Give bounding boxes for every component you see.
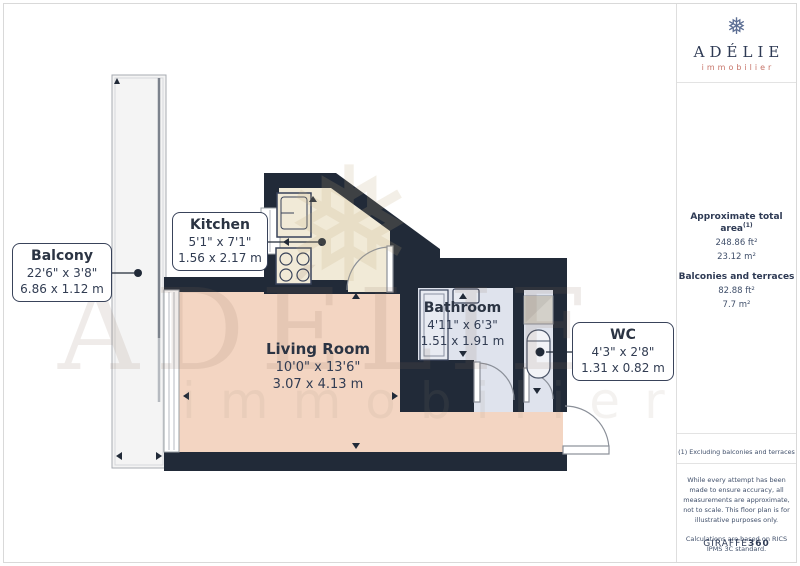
info-sidebar: ❅ ADÉLIE immobilier Approximate total ar…: [676, 4, 796, 562]
divider: [677, 463, 796, 464]
balconies-ft: 82.88 ft²: [677, 286, 796, 296]
entrance-door-arc: [565, 406, 609, 450]
total-area-ft: 248.86 ft²: [677, 238, 796, 248]
footnote: (1) Excluding balconies and terraces: [677, 448, 796, 456]
floorplan-page: ADÉLIE immobilier ❅ Balcony 22'6" x 3'8"…: [0, 0, 800, 566]
total-area-m: 23.12 m²: [677, 252, 796, 262]
wc-shelf: [524, 296, 553, 324]
room-dim-imperial: 4'11" x 6'3": [405, 317, 520, 333]
room-dim-metric: 1.31 x 0.82 m: [575, 360, 671, 376]
room-dim-imperial: 22'6" x 3'8": [15, 265, 109, 281]
room-dim-imperial: 10'0" x 13'6": [228, 359, 408, 376]
room-name: Balcony: [15, 248, 109, 265]
balconies-m: 7.7 m²: [677, 300, 796, 310]
room-name: Living Room: [228, 340, 408, 359]
room-name: WC: [575, 327, 671, 344]
disclaimer-text-1: While every attempt has been made to ens…: [681, 475, 792, 525]
footnote-ref: (1): [743, 222, 753, 229]
room-name: Kitchen: [175, 217, 265, 234]
living-balcony-window: [164, 290, 179, 452]
kitchen-counter: [277, 193, 311, 237]
room-name: Bathroom: [405, 300, 520, 317]
divider: [677, 433, 796, 434]
area-summary: Approximate total area(1) 248.86 ft² 23.…: [677, 212, 796, 310]
wc-label: WC 4'3" x 2'8" 1.31 x 0.82 m: [572, 322, 674, 381]
agency-name: ADÉLIE: [677, 43, 796, 61]
stove: [276, 248, 311, 284]
room-dim-imperial: 5'1" x 7'1": [175, 234, 265, 250]
divider: [677, 82, 796, 83]
kitchen-label: Kitchen 5'1" x 7'1" 1.56 x 2.17 m: [172, 212, 268, 271]
agency-logo: ❅ ADÉLIE immobilier: [677, 14, 796, 72]
room-dim-metric: 6.86 x 1.12 m: [15, 281, 109, 297]
room-dim-imperial: 4'3" x 2'8": [575, 344, 671, 360]
balcony-label: Balcony 22'6" x 3'8" 6.86 x 1.12 m: [12, 243, 112, 302]
entrance-door-leaf: [563, 446, 609, 454]
agency-subtitle: immobilier: [677, 63, 796, 72]
room-dim-metric: 1.56 x 2.17 m: [175, 250, 265, 266]
total-area-heading: Approximate total area(1): [677, 212, 796, 234]
bathroom-label: Bathroom 4'11" x 6'3" 1.51 x 1.91 m: [405, 300, 520, 349]
balconies-heading: Balconies and terraces: [677, 272, 796, 282]
living-room-label: Living Room 10'0" x 13'6" 3.07 x 4.13 m: [228, 340, 408, 393]
snowflake-icon: ❅: [677, 14, 796, 40]
room-dim-metric: 3.07 x 4.13 m: [228, 376, 408, 393]
giraffe360-logo: GIRAFFE360: [677, 539, 796, 549]
room-dim-metric: 1.51 x 1.91 m: [405, 333, 520, 349]
